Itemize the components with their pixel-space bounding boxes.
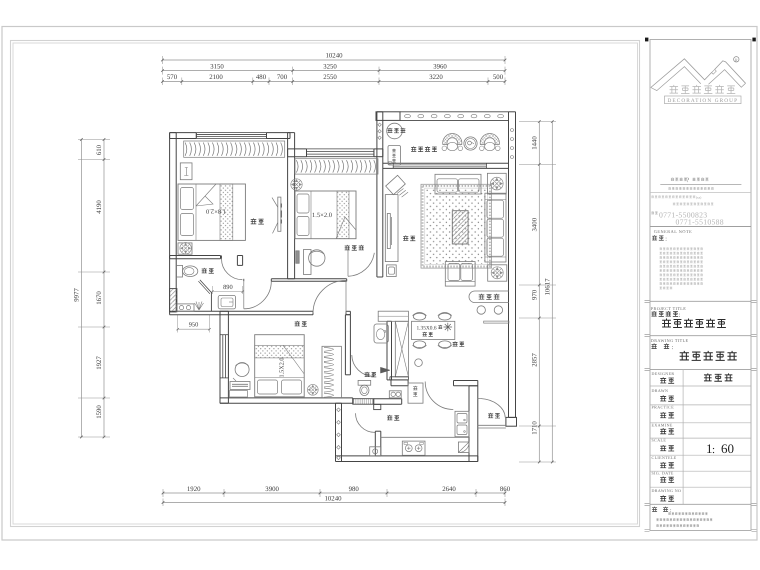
svg-text:1920: 1920 <box>187 486 201 493</box>
svg-text:0771-5510588: 0771-5510588 <box>676 218 724 227</box>
svg-text:700: 700 <box>277 74 288 81</box>
svg-text:4190: 4190 <box>96 200 103 214</box>
svg-text:SIG. DATE: SIG. DATE <box>652 471 674 476</box>
svg-text:R: R <box>735 57 738 62</box>
svg-text:3150: 3150 <box>210 63 224 70</box>
svg-text:2857: 2857 <box>532 353 539 367</box>
svg-text:DRAWN: DRAWN <box>652 388 669 393</box>
svg-text:610: 610 <box>96 144 103 155</box>
svg-text:2550: 2550 <box>323 74 337 81</box>
svg-text:1.5X2.0: 1.5X2.0 <box>279 358 286 378</box>
svg-text:860: 860 <box>500 486 511 493</box>
svg-text:1590: 1590 <box>96 405 103 419</box>
svg-text:980: 980 <box>349 486 360 493</box>
svg-text:570: 570 <box>167 74 178 81</box>
svg-text:480: 480 <box>256 74 267 81</box>
svg-text:CLIENTELE: CLIENTELE <box>652 455 677 460</box>
svg-text:PRACTICE: PRACTICE <box>652 405 675 410</box>
svg-text:DECORATION GROUP: DECORATION GROUP <box>667 98 738 104</box>
svg-text:1670: 1670 <box>96 291 103 305</box>
svg-text:3250: 3250 <box>323 63 337 70</box>
svg-text:10240: 10240 <box>325 496 343 503</box>
svg-text:SCALE: SCALE <box>652 438 667 443</box>
svg-text:1.8×2.0: 1.8×2.0 <box>206 208 226 215</box>
svg-text:1927: 1927 <box>96 356 103 370</box>
svg-text:1.35X0.6: 1.35X0.6 <box>416 325 436 331</box>
svg-text:10240: 10240 <box>326 53 344 60</box>
svg-text:60: 60 <box>721 441 734 456</box>
svg-text:500: 500 <box>493 74 504 81</box>
svg-text:970: 970 <box>532 289 539 300</box>
svg-text:2640: 2640 <box>442 486 456 493</box>
svg-text:3400: 3400 <box>532 217 539 231</box>
svg-text:PROJECT TITLE: PROJECT TITLE <box>651 306 686 311</box>
svg-text:2100: 2100 <box>209 74 223 81</box>
svg-text:?: ? <box>686 177 689 184</box>
svg-text:3220: 3220 <box>429 74 443 81</box>
svg-text:890: 890 <box>223 284 233 291</box>
svg-text:DRAWING TITLE: DRAWING TITLE <box>651 338 689 343</box>
svg-text::: : <box>712 444 715 456</box>
svg-text:3960: 3960 <box>433 63 447 70</box>
svg-text:10617: 10617 <box>545 278 552 296</box>
svg-text:9977: 9977 <box>74 288 81 302</box>
svg-text:1.5×2.0: 1.5×2.0 <box>312 212 332 219</box>
svg-text:(xx): (xx) <box>696 196 701 200</box>
svg-text:DESIGNER: DESIGNER <box>652 371 675 376</box>
svg-text:1710: 1710 <box>532 421 539 435</box>
svg-text:DRAWING NO: DRAWING NO <box>652 488 682 493</box>
svg-text:1440: 1440 <box>532 136 539 150</box>
svg-text:EXAMINE: EXAMINE <box>652 422 673 427</box>
svg-text:950: 950 <box>189 322 199 329</box>
svg-text:GENERAL NOTE: GENERAL NOTE <box>654 229 692 234</box>
svg-text:3900: 3900 <box>265 486 279 493</box>
